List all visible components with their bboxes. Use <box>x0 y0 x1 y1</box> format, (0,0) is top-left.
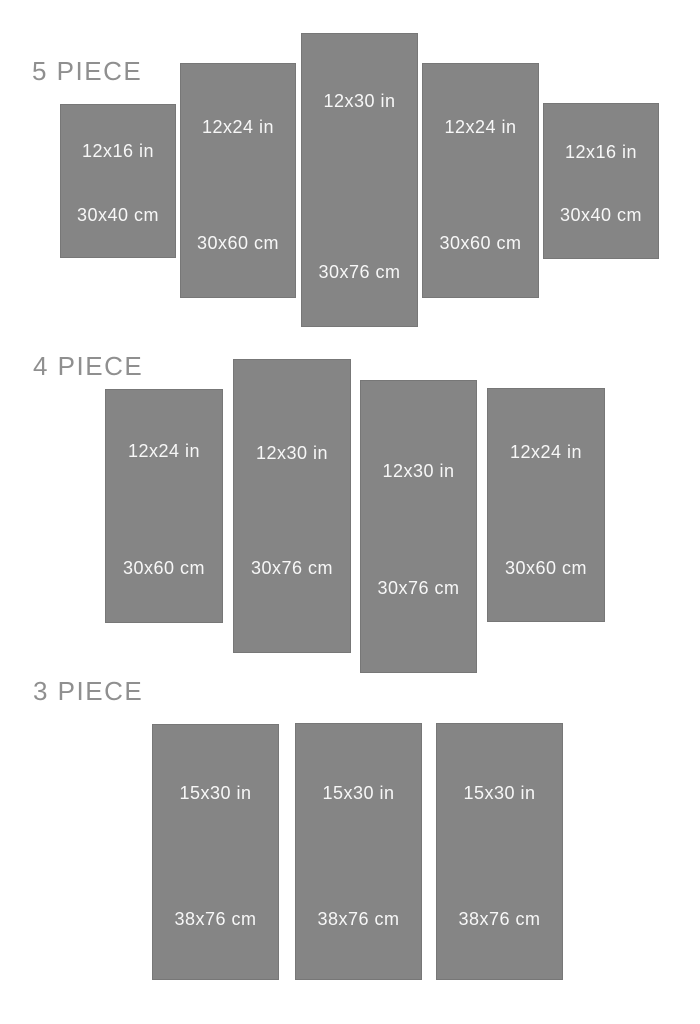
panel-5piece-1: 12x16 in 30x40 cm <box>60 104 176 258</box>
size-label-inches: 12x24 in <box>423 117 538 137</box>
size-label-inches: 15x30 in <box>153 783 278 803</box>
size-label-cm: 38x76 cm <box>437 909 562 929</box>
size-label-inches: 12x30 in <box>234 443 350 463</box>
panel-3piece-3: 15x30 in 38x76 cm <box>436 723 563 980</box>
size-label-inches: 12x24 in <box>181 117 295 137</box>
size-label-cm: 30x40 cm <box>544 205 658 225</box>
size-label-inches: 12x24 in <box>488 442 604 462</box>
size-label-inches: 12x16 in <box>544 142 658 162</box>
panel-5piece-5: 12x16 in 30x40 cm <box>543 103 659 259</box>
size-label-inches: 15x30 in <box>296 783 421 803</box>
panel-3piece-1: 15x30 in 38x76 cm <box>152 724 279 980</box>
size-label-cm: 30x40 cm <box>61 205 175 225</box>
size-label-inches: 12x16 in <box>61 141 175 161</box>
size-label-cm: 30x60 cm <box>106 558 222 578</box>
size-label-cm: 30x60 cm <box>423 233 538 253</box>
size-label-cm: 30x76 cm <box>302 262 417 282</box>
size-label-inches: 12x30 in <box>361 461 476 481</box>
panel-4piece-1: 12x24 in 30x60 cm <box>105 389 223 623</box>
panel-5piece-2: 12x24 in 30x60 cm <box>180 63 296 298</box>
panel-4piece-3: 12x30 in 30x76 cm <box>360 380 477 673</box>
section-title-5-piece: 5 PIECE <box>32 58 142 84</box>
panel-3piece-2: 15x30 in 38x76 cm <box>295 723 422 980</box>
size-label-cm: 30x60 cm <box>181 233 295 253</box>
panel-5piece-4: 12x24 in 30x60 cm <box>422 63 539 298</box>
size-label-cm: 30x76 cm <box>361 578 476 598</box>
panel-5piece-3: 12x30 in 30x76 cm <box>301 33 418 327</box>
panel-4piece-2: 12x30 in 30x76 cm <box>233 359 351 653</box>
size-label-inches: 15x30 in <box>437 783 562 803</box>
size-chart: 5 PIECE 12x16 in 30x40 cm 12x24 in 30x60… <box>0 0 700 1024</box>
size-label-cm: 30x76 cm <box>234 558 350 578</box>
size-label-cm: 38x76 cm <box>296 909 421 929</box>
size-label-inches: 12x24 in <box>106 441 222 461</box>
size-label-cm: 30x60 cm <box>488 558 604 578</box>
size-label-inches: 12x30 in <box>302 91 417 111</box>
panel-4piece-4: 12x24 in 30x60 cm <box>487 388 605 622</box>
section-title-4-piece: 4 PIECE <box>33 353 143 379</box>
size-label-cm: 38x76 cm <box>153 909 278 929</box>
section-title-3-piece: 3 PIECE <box>33 678 143 704</box>
